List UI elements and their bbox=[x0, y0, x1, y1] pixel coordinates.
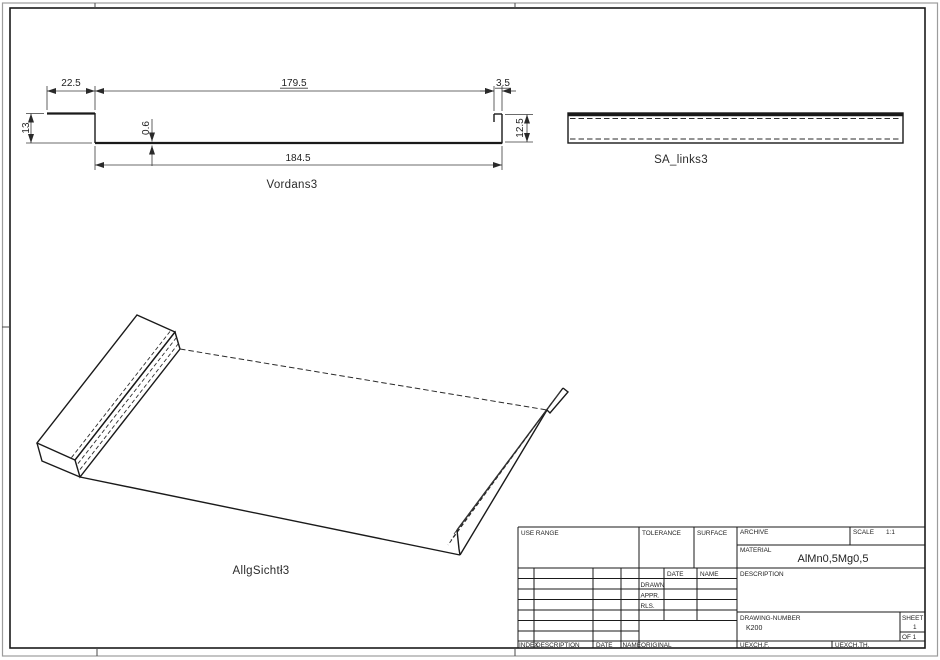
surface-label: SURFACE bbox=[697, 530, 727, 537]
front-view: 22.5 179.5 3.5 13 0.6 12.5 184.5 Vordans… bbox=[21, 78, 533, 191]
material-value: AlMn0,5Mg0,5 bbox=[798, 553, 869, 565]
sheet-label: SHEET bbox=[902, 615, 923, 622]
drawing-number-label: DRAWING-NUMBER bbox=[740, 615, 801, 622]
side-profile bbox=[568, 113, 903, 143]
rev-name-label: NAME bbox=[623, 642, 641, 649]
drawing-number-value: K200 bbox=[746, 625, 762, 632]
rls-label: RLS. bbox=[641, 603, 655, 610]
dim-12-5: 12.5 bbox=[515, 118, 526, 138]
title-block-grid bbox=[518, 527, 925, 648]
appr-label: APPR. bbox=[641, 593, 660, 600]
scale-label: SCALE bbox=[853, 529, 874, 536]
iso-left-flange bbox=[37, 315, 180, 477]
material-label: MATERIAL bbox=[740, 547, 772, 554]
rev-description-label: DESCRIPTION bbox=[536, 642, 580, 649]
side-view: SA_links3 bbox=[568, 113, 903, 166]
drawing-sheet: 22.5 179.5 3.5 13 0.6 12.5 184.5 Vordans… bbox=[0, 0, 940, 660]
tolerance-label: TOLERANCE bbox=[642, 530, 681, 537]
sheet-value: 1 bbox=[913, 624, 917, 631]
cad-drawing: 22.5 179.5 3.5 13 0.6 12.5 184.5 Vordans… bbox=[0, 0, 940, 660]
iso-view-label: AllgSichtł3 bbox=[233, 565, 290, 577]
dim-0-6: 0.6 bbox=[141, 121, 152, 135]
drawn-label: DRAWN bbox=[641, 582, 665, 589]
use-range-label: USE RANGE bbox=[521, 530, 559, 537]
title-block: USE RANGE TOLERANCE SURFACE ARCHIVE SCAL… bbox=[518, 527, 925, 649]
uexchth-label: UEXCH.TH. bbox=[835, 642, 870, 649]
date-col-label: DATE bbox=[667, 571, 684, 578]
archive-label: ARCHIVE bbox=[740, 529, 768, 536]
front-profile bbox=[47, 113, 502, 144]
front-dimensions: 22.5 179.5 3.5 13 0.6 12.5 184.5 bbox=[21, 78, 533, 170]
dim-22-5: 22.5 bbox=[61, 78, 81, 89]
dim-3-5: 3.5 bbox=[496, 78, 510, 89]
uexchf-label: UEXCH.F. bbox=[740, 642, 769, 649]
scale-value: 1:1 bbox=[886, 529, 895, 536]
rev-date-label: DATE bbox=[596, 642, 613, 649]
front-view-label: Vordans3 bbox=[267, 179, 318, 191]
dim-184-5: 184.5 bbox=[285, 153, 310, 164]
dim-179-5: 179.5 bbox=[281, 78, 306, 89]
side-view-label: SA_links3 bbox=[654, 154, 708, 166]
centering-marks bbox=[2, 3, 515, 656]
original-label: ORIGINAL bbox=[641, 642, 672, 649]
description-label: DESCRIPTION bbox=[740, 571, 784, 578]
iso-view: AllgSichtł3 bbox=[37, 315, 568, 577]
sheet-of-label: OF 1 bbox=[902, 634, 917, 641]
name-col-label: NAME bbox=[700, 571, 718, 578]
dim-13: 13 bbox=[21, 122, 32, 134]
